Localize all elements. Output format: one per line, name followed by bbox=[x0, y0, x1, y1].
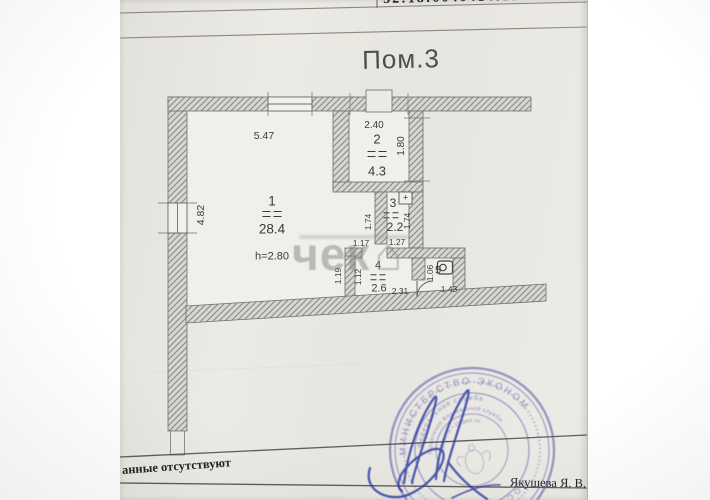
stamp-outer-text-bottom: РОСРЕЕСТР bbox=[451, 478, 533, 500]
svg-text:РОСРЕЕСТР: РОСРЕЕСТР bbox=[451, 478, 533, 500]
photo-of-floor-plan-document: 52:18:0040414:150 Пом.3 5.47 4.82 1 28.4… bbox=[0, 0, 710, 500]
stamp-and-signature: МИНИСТЕРСТВО ЭКОНОМ РОСРЕЕСТР Федеральна… bbox=[0, 0, 710, 500]
stamp-emblem-eagle bbox=[454, 442, 493, 477]
